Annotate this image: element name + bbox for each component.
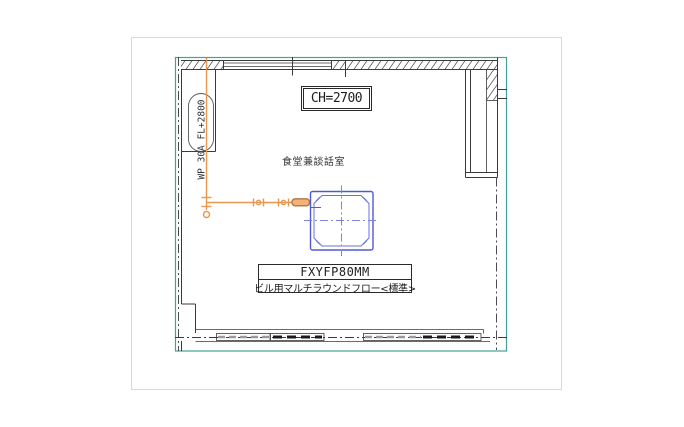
- ceiling-height-label: CH=2700: [311, 91, 362, 106]
- unit-model-description: ビル用マルチラウンドフロー<標準>: [259, 280, 411, 295]
- refrigerant-pipe: [202, 58, 310, 218]
- indoor-unit: [304, 186, 379, 257]
- wall-column: [466, 58, 508, 351]
- unit-model-tag: FXYFP80MM ビル用マルチラウンドフロー<標準>: [258, 264, 412, 293]
- top-wall: [181, 57, 497, 77]
- room-name-label: 食堂兼談話室: [282, 153, 346, 168]
- unit-model-number: FXYFP80MM: [259, 265, 411, 280]
- drain-end-symbol: [204, 212, 210, 218]
- flex-connector: [292, 199, 310, 206]
- floorplan-linework: [0, 0, 684, 427]
- left-wall: [179, 57, 196, 351]
- bottom-wall: [175, 330, 507, 342]
- cad-floorplan-screenshot: CH=2700 食堂兼談話室 WP 30A FL+2800 FXYFP80MM …: [0, 0, 684, 427]
- pipe-riser-label: WP 30A FL+2800: [197, 95, 208, 185]
- ceiling-height-tag: CH=2700: [301, 86, 372, 111]
